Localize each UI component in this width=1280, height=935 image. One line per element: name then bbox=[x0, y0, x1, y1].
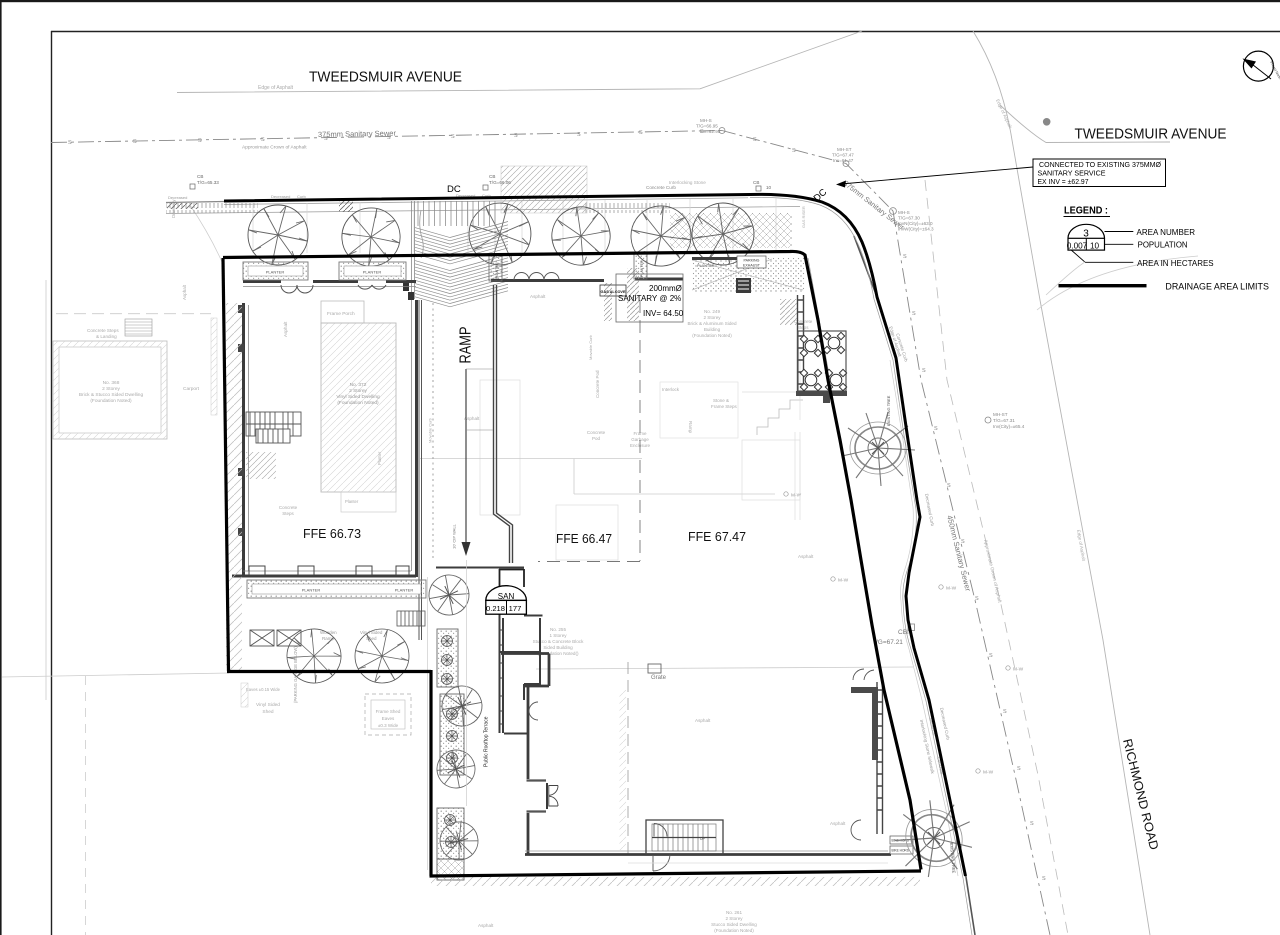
svg-text:Inv(City)=±65.4: Inv(City)=±65.4 bbox=[993, 424, 1025, 429]
svg-text:No. 372: No. 372 bbox=[350, 382, 367, 388]
svg-text:10: 10 bbox=[1090, 241, 1100, 250]
svg-text:Vinyl Sided Dwelling: Vinyl Sided Dwelling bbox=[336, 394, 380, 400]
svg-text:Concrete: Concrete bbox=[279, 505, 298, 510]
svg-text:No. 368: No. 368 bbox=[103, 380, 120, 386]
svg-text:Shed: Shed bbox=[262, 709, 274, 715]
svg-text:2 Storey: 2 Storey bbox=[725, 916, 743, 921]
svg-text:POPULATION: POPULATION bbox=[1138, 240, 1188, 250]
svg-text:2 Storey: 2 Storey bbox=[349, 388, 367, 394]
svg-text:DC: DC bbox=[447, 184, 461, 195]
svg-text:Interlocking Stone: Interlocking Stone bbox=[669, 180, 706, 185]
svg-text:Eaves ±0.15 Wide: Eaves ±0.15 Wide bbox=[246, 687, 281, 692]
svg-text:TWEEDSMUIR AVENUE: TWEEDSMUIR AVENUE bbox=[309, 70, 462, 86]
svg-text:PLANTER: PLANTER bbox=[266, 270, 285, 275]
svg-text:AREA IN HECTARES: AREA IN HECTARES bbox=[1137, 258, 1214, 268]
svg-text:Frame Steps: Frame Steps bbox=[711, 404, 738, 409]
svg-text:PARKING: PARKING bbox=[744, 259, 760, 263]
svg-text:T/G=67.30: T/G=67.30 bbox=[898, 216, 920, 221]
svg-text:Interlock: Interlock bbox=[662, 387, 680, 392]
svg-text:Decreased: Decreased bbox=[168, 195, 187, 200]
svg-text:Approximate Crown of Asphalt: Approximate Crown of Asphalt bbox=[242, 145, 307, 151]
svg-text:2 Storey: 2 Storey bbox=[703, 315, 721, 320]
svg-text:S: S bbox=[639, 130, 643, 136]
svg-text:S: S bbox=[451, 134, 455, 140]
svg-text:3: 3 bbox=[1083, 229, 1089, 240]
svg-text:T/G=67.31: T/G=67.31 bbox=[993, 418, 1015, 423]
svg-text:CB: CB bbox=[197, 174, 203, 179]
svg-text:S: S bbox=[792, 148, 796, 154]
svg-text:S: S bbox=[903, 254, 907, 260]
svg-text:No. 249: No. 249 bbox=[704, 309, 721, 314]
svg-text:SANITARY @ 2%: SANITARY @ 2% bbox=[618, 294, 681, 303]
svg-text:177: 177 bbox=[509, 604, 522, 613]
svg-text:Concrete Steps: Concrete Steps bbox=[87, 328, 119, 333]
svg-text:EXISTING TREE: EXISTING TREE bbox=[886, 395, 891, 426]
svg-text:375mm Sanitary Sewer: 375mm Sanitary Sewer bbox=[318, 129, 397, 139]
svg-text:Grate: Grate bbox=[651, 675, 667, 681]
svg-text:Building: Building bbox=[704, 327, 721, 332]
svg-text:0.007: 0.007 bbox=[1067, 241, 1088, 250]
svg-text:200mmØ: 200mmØ bbox=[649, 284, 682, 293]
svg-text:Pod: Pod bbox=[592, 436, 601, 441]
svg-text:T/G=66.06: T/G=66.06 bbox=[489, 180, 511, 185]
svg-text:DRAINAGE AREA LIMITS: DRAINAGE AREA LIMITS bbox=[1165, 282, 1269, 292]
svg-text:Asphalt: Asphalt bbox=[695, 718, 711, 723]
svg-text:PLANTER: PLANTER bbox=[302, 588, 321, 593]
svg-text:Concrete: Concrete bbox=[587, 430, 606, 435]
svg-text:Brick & Aluminum Sided: Brick & Aluminum Sided bbox=[687, 321, 736, 326]
svg-text:±0.3 Wide: ±0.3 Wide bbox=[378, 723, 399, 728]
svg-text:0.218: 0.218 bbox=[486, 604, 505, 613]
svg-text:PLANTER: PLANTER bbox=[697, 264, 715, 268]
svg-text:2 Storey: 2 Storey bbox=[102, 386, 120, 392]
svg-text:Curb: Curb bbox=[297, 194, 306, 199]
svg-text:INV= 64.50: INV= 64.50 bbox=[643, 309, 684, 318]
svg-text:Inv=62.95: Inv=62.95 bbox=[700, 129, 721, 134]
svg-text:Brick & Stucco Sided Dwelling: Brick & Stucco Sided Dwelling bbox=[79, 392, 144, 398]
svg-text:Frame Porch: Frame Porch bbox=[327, 311, 355, 317]
svg-text:Asphalt: Asphalt bbox=[283, 321, 288, 337]
svg-text:10' CIP WALL: 10' CIP WALL bbox=[452, 523, 457, 549]
svg-text:(Foundation Noted): (Foundation Noted) bbox=[337, 400, 379, 406]
svg-text:InvW(City)=±64.3: InvW(City)=±64.3 bbox=[898, 227, 934, 232]
svg-text:Ramp: Ramp bbox=[688, 421, 693, 434]
svg-text:T/G=66.95: T/G=66.95 bbox=[696, 124, 718, 129]
svg-text:MH-ST: MH-ST bbox=[837, 147, 852, 152]
svg-text:Frame Shed: Frame Shed bbox=[376, 709, 401, 714]
svg-text:Asphalt: Asphalt bbox=[830, 821, 846, 826]
svg-text:10: 10 bbox=[766, 185, 772, 190]
svg-text:MH-S: MH-S bbox=[700, 118, 712, 123]
svg-text:LEGEND :: LEGEND : bbox=[1064, 206, 1108, 217]
svg-text:S: S bbox=[922, 368, 926, 374]
svg-text:S: S bbox=[1030, 821, 1034, 827]
svg-text:Asphalt: Asphalt bbox=[530, 294, 546, 299]
svg-text:Public Rooftop Terrace: Public Rooftop Terrace bbox=[484, 716, 490, 767]
svg-text:Stucco Sided Dwelling: Stucco Sided Dwelling bbox=[711, 922, 757, 927]
svg-text:S: S bbox=[577, 132, 581, 138]
svg-text:1 Storey: 1 Storey bbox=[549, 633, 567, 638]
svg-text:S: S bbox=[1003, 709, 1007, 715]
svg-text:FFE 66.47: FFE 66.47 bbox=[556, 531, 612, 546]
svg-text:(Foundation Noted): (Foundation Noted) bbox=[692, 333, 732, 338]
svg-text:(Foundation Noted): (Foundation Noted) bbox=[90, 398, 132, 404]
svg-text:CB: CB bbox=[753, 180, 759, 185]
svg-text:Carport: Carport bbox=[183, 386, 200, 392]
svg-text:S: S bbox=[514, 133, 518, 139]
svg-text:S: S bbox=[68, 140, 72, 146]
svg-text:Vinyl Sided: Vinyl Sided bbox=[256, 702, 280, 708]
svg-text:Steps: Steps bbox=[282, 511, 294, 516]
svg-text:Movable Curb: Movable Curb bbox=[588, 334, 593, 360]
svg-text:S: S bbox=[975, 596, 979, 602]
svg-text:TWEEDSMUIR AVENUE: TWEEDSMUIR AVENUE bbox=[1075, 127, 1227, 143]
svg-text:Edge of Asphalt: Edge of Asphalt bbox=[258, 85, 294, 91]
svg-text:GAS RISER: GAS RISER bbox=[801, 206, 806, 228]
svg-text:S: S bbox=[753, 137, 757, 143]
svg-text:PLANTER: PLANTER bbox=[640, 260, 644, 277]
svg-text:MH-ST: MH-ST bbox=[993, 412, 1008, 417]
svg-text:Planter: Planter bbox=[377, 451, 382, 465]
svg-text:No. 255: No. 255 bbox=[550, 627, 567, 632]
svg-text:PLANTER: PLANTER bbox=[495, 262, 499, 279]
svg-text:PLANTER: PLANTER bbox=[363, 270, 382, 275]
svg-text:S: S bbox=[261, 137, 265, 143]
svg-text:Concrete Curb: Concrete Curb bbox=[646, 185, 676, 190]
svg-text:/G=67.21: /G=67.21 bbox=[876, 639, 903, 646]
svg-text:No. 261: No. 261 bbox=[726, 910, 743, 915]
svg-text:M-W: M-W bbox=[946, 586, 957, 592]
svg-text:M-W: M-W bbox=[838, 578, 849, 584]
svg-text:Asphalt: Asphalt bbox=[478, 923, 494, 928]
svg-text:S: S bbox=[989, 653, 993, 659]
svg-text:S: S bbox=[947, 483, 951, 489]
svg-text:CBI: CBI bbox=[898, 629, 909, 636]
svg-text:SAN: SAN bbox=[498, 592, 515, 601]
svg-text:T/G=67.47: T/G=67.47 bbox=[832, 153, 854, 158]
svg-text:Planter: Planter bbox=[345, 499, 359, 504]
svg-text:M-W: M-W bbox=[983, 770, 994, 776]
svg-text:Concrete Pod: Concrete Pod bbox=[595, 370, 600, 398]
svg-text:Movable Curb: Movable Curb bbox=[428, 417, 433, 443]
svg-text:S: S bbox=[934, 426, 938, 432]
svg-text:AREA NUMBER: AREA NUMBER bbox=[1137, 227, 1196, 237]
svg-text:Decreased: Decreased bbox=[271, 194, 290, 199]
svg-text:RAMP: RAMP bbox=[458, 327, 475, 364]
svg-text:S: S bbox=[1017, 766, 1021, 772]
svg-text:Asphalt: Asphalt bbox=[798, 554, 814, 559]
svg-text:M-W: M-W bbox=[1013, 667, 1024, 673]
svg-text:S: S bbox=[133, 139, 137, 145]
svg-text:EX INV = ±62.97: EX INV = ±62.97 bbox=[1038, 177, 1089, 186]
svg-text:FFE 66.73: FFE 66.73 bbox=[303, 526, 361, 541]
svg-text:PLANTER: PLANTER bbox=[395, 588, 414, 593]
svg-text:FFE 67.47: FFE 67.47 bbox=[688, 529, 746, 544]
svg-text:T/G=65.33: T/G=65.33 bbox=[197, 180, 219, 185]
svg-text:UP: UP bbox=[700, 837, 706, 841]
svg-text:Eaves: Eaves bbox=[382, 716, 395, 721]
svg-text:S: S bbox=[198, 138, 202, 144]
svg-text:MH-S: MH-S bbox=[898, 210, 910, 215]
svg-text:Stone &: Stone & bbox=[713, 398, 729, 403]
svg-text:Sided Building: Sided Building bbox=[543, 645, 573, 650]
svg-text:& Landing: & Landing bbox=[96, 334, 117, 339]
svg-text:BIKE HORS: BIKE HORS bbox=[892, 849, 909, 853]
svg-text:EXHAUST: EXHAUST bbox=[743, 264, 761, 268]
svg-text:InvN(City)=±63.0: InvN(City)=±63.0 bbox=[898, 221, 933, 226]
svg-text:CB: CB bbox=[489, 174, 495, 179]
svg-text:Asphalt: Asphalt bbox=[182, 284, 187, 300]
svg-text:S: S bbox=[1042, 876, 1046, 882]
svg-text:(Foundation Noted): (Foundation Noted) bbox=[714, 928, 754, 933]
svg-text:S: S bbox=[912, 311, 916, 317]
svg-text:Inv=61.47: Inv=61.47 bbox=[833, 158, 854, 163]
